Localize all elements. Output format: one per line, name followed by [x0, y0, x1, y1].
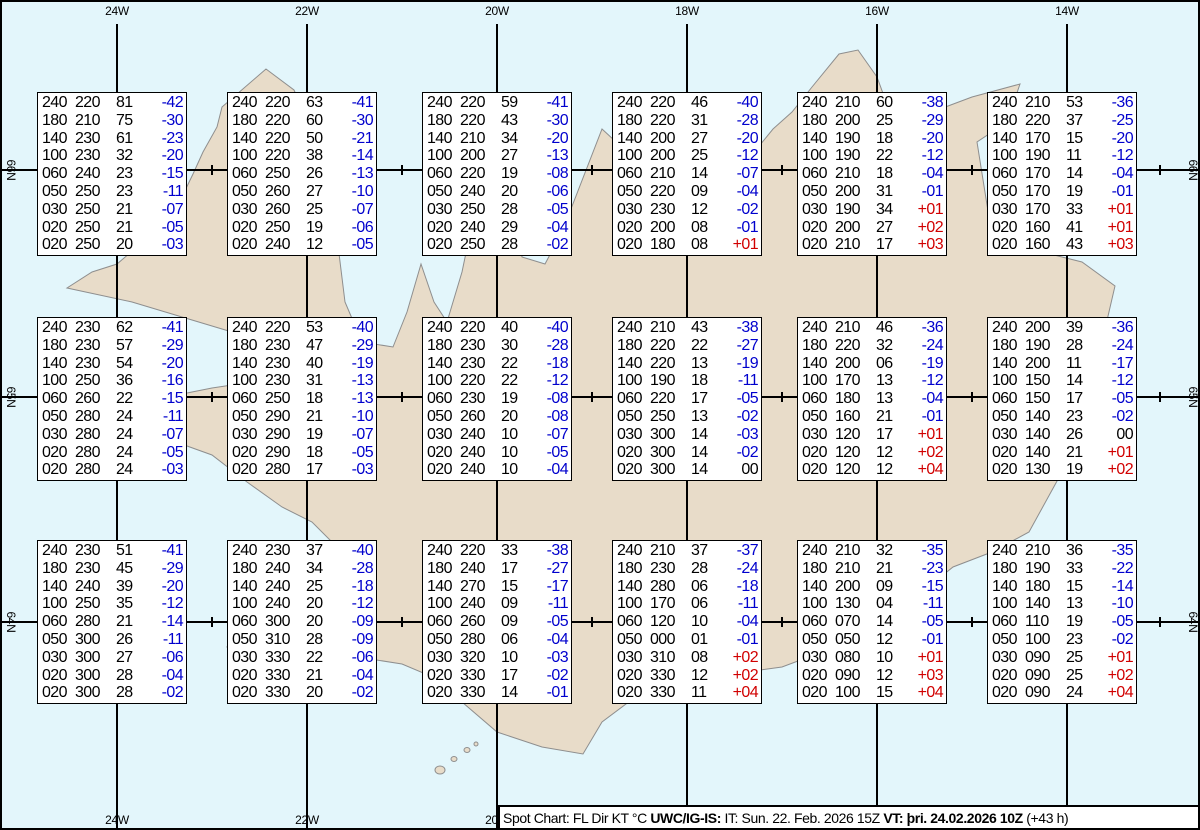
level-row-fl050: 05028006-04	[427, 631, 568, 649]
spot-box-20w-64n: 24022033-3818024017-2714027015-171002400…	[422, 540, 572, 704]
wind-speed-kt: 19	[1066, 461, 1094, 479]
wind-speed-kt: 31	[691, 112, 719, 130]
level-row-fl020: 02024029-04	[427, 219, 568, 237]
level-row-fl020: 02025021-05	[42, 219, 183, 237]
temperature-c: -02	[144, 684, 183, 702]
wind-speed-kt: 39	[1066, 319, 1094, 337]
flight-level: 240	[617, 319, 650, 337]
flight-level: 050	[992, 408, 1025, 426]
wind-speed-kt: 25	[876, 112, 904, 130]
flight-level: 240	[992, 542, 1025, 560]
wind-direction: 000	[650, 631, 691, 649]
flight-level: 020	[427, 461, 460, 479]
wind-direction: 190	[1025, 560, 1066, 578]
flight-level: 030	[617, 426, 650, 444]
wind-direction: 250	[265, 219, 306, 237]
level-row-fl100: 10022038-14	[232, 147, 373, 165]
flight-level: 060	[42, 613, 75, 631]
level-row-fl030: 03017033+01	[992, 201, 1133, 219]
grid-label-bottom-24w: 24W	[105, 813, 129, 827]
temperature-c: -40	[334, 319, 373, 337]
flight-level: 020	[992, 461, 1025, 479]
temperature-c: -09	[334, 631, 373, 649]
wind-direction: 170	[1025, 201, 1066, 219]
wind-speed-kt: 15	[1066, 130, 1094, 148]
temperature-c: -27	[719, 337, 758, 355]
flight-level: 240	[992, 94, 1025, 112]
wind-speed-kt: 14	[691, 461, 719, 479]
wind-speed-kt: 25	[1066, 667, 1094, 685]
wind-direction: 240	[460, 595, 501, 613]
wind-speed-kt: 34	[876, 201, 904, 219]
wind-direction: 280	[460, 631, 501, 649]
temperature-c: -29	[904, 112, 943, 130]
temperature-c: -04	[529, 631, 568, 649]
flight-level: 050	[427, 408, 460, 426]
temperature-c: -10	[334, 183, 373, 201]
wind-speed-kt: 50	[306, 130, 334, 148]
wind-direction: 190	[1025, 147, 1066, 165]
temperature-c: -29	[144, 337, 183, 355]
wind-direction: 190	[1025, 337, 1066, 355]
wind-speed-kt: 12	[876, 667, 904, 685]
wind-speed-kt: 20	[501, 408, 529, 426]
wind-direction: 110	[1025, 613, 1066, 631]
temperature-c: +02	[904, 219, 943, 237]
wind-speed-kt: 34	[306, 560, 334, 578]
wind-speed-kt: 36	[1066, 542, 1094, 560]
flight-level: 100	[42, 147, 75, 165]
wind-direction: 260	[460, 613, 501, 631]
wind-direction: 120	[835, 444, 876, 462]
wind-speed-kt: 14	[691, 426, 719, 444]
wind-speed-kt: 32	[116, 147, 144, 165]
temperature-c: -06	[529, 183, 568, 201]
wind-speed-kt: 22	[116, 390, 144, 408]
wind-direction: 200	[835, 219, 876, 237]
level-row-fl060: 06007014-05	[802, 613, 943, 631]
temperature-c: -01	[529, 684, 568, 702]
level-row-fl140: 14024039-20	[42, 578, 183, 596]
wind-direction: 220	[265, 94, 306, 112]
wind-speed-kt: 33	[1066, 201, 1094, 219]
temperature-c: -04	[529, 461, 568, 479]
flight-level: 140	[42, 130, 75, 148]
wind-direction: 190	[835, 130, 876, 148]
flight-level: 020	[427, 684, 460, 702]
wind-direction: 330	[650, 684, 691, 702]
flight-level: 030	[42, 201, 75, 219]
wind-speed-kt: 25	[691, 147, 719, 165]
wind-speed-kt: 12	[691, 201, 719, 219]
flight-level: 020	[617, 219, 650, 237]
flight-level: 060	[802, 390, 835, 408]
temperature-c: -15	[144, 390, 183, 408]
flight-level: 060	[802, 165, 835, 183]
wind-direction: 220	[1025, 112, 1066, 130]
wind-direction: 210	[650, 319, 691, 337]
flight-level: 030	[617, 649, 650, 667]
wind-speed-kt: 21	[306, 667, 334, 685]
wind-speed-kt: 21	[116, 613, 144, 631]
temperature-c: -41	[334, 94, 373, 112]
level-row-fl020: 02009024+04	[992, 684, 1133, 702]
level-row-fl240: 24023062-41	[42, 319, 183, 337]
wind-direction: 120	[650, 613, 691, 631]
wind-speed-kt: 13	[691, 408, 719, 426]
wind-speed-kt: 40	[501, 319, 529, 337]
flight-level: 060	[617, 613, 650, 631]
wind-speed-kt: 22	[691, 337, 719, 355]
temperature-c: -03	[719, 426, 758, 444]
wind-speed-kt: 39	[116, 578, 144, 596]
temperature-c: -05	[1094, 390, 1133, 408]
flight-level: 140	[42, 355, 75, 373]
wind-speed-kt: 17	[306, 461, 334, 479]
level-row-fl180: 18023030-28	[427, 337, 568, 355]
temperature-c: -23	[144, 130, 183, 148]
flight-level: 020	[232, 684, 265, 702]
wind-speed-kt: 23	[116, 183, 144, 201]
level-row-fl140: 14020027-20	[617, 130, 758, 148]
temperature-c: -05	[529, 201, 568, 219]
level-row-fl050: 05016021-01	[802, 408, 943, 426]
wind-speed-kt: 22	[501, 372, 529, 390]
level-row-fl180: 18022060-30	[232, 112, 373, 130]
level-row-fl020: 02024012-05	[232, 236, 373, 254]
wind-speed-kt: 26	[306, 165, 334, 183]
temperature-c: -04	[719, 183, 758, 201]
level-row-fl180: 18019033-22	[992, 560, 1133, 578]
flight-level: 020	[42, 219, 75, 237]
flight-level: 020	[42, 236, 75, 254]
wind-direction: 220	[650, 183, 691, 201]
temperature-c: -23	[904, 560, 943, 578]
wind-direction: 230	[75, 560, 116, 578]
wind-direction: 250	[75, 372, 116, 390]
temperature-c: -04	[904, 390, 943, 408]
grid-label-top-20w: 20W	[485, 4, 509, 18]
wind-direction: 240	[265, 560, 306, 578]
flight-level: 240	[427, 319, 460, 337]
level-row-fl020: 02016043+03	[992, 236, 1133, 254]
temperature-c: +04	[1094, 684, 1133, 702]
level-row-fl020: 02024010-05	[427, 444, 568, 462]
grid-label-top-18w: 18W	[675, 4, 699, 18]
wind-speed-kt: 38	[306, 147, 334, 165]
wind-speed-kt: 53	[1066, 94, 1094, 112]
flight-level: 030	[427, 426, 460, 444]
temperature-c: +03	[904, 236, 943, 254]
temperature-c: -12	[719, 147, 758, 165]
level-row-fl060: 06030020-09	[232, 613, 373, 631]
level-row-fl030: 03028024-07	[42, 426, 183, 444]
temperature-c: -06	[144, 649, 183, 667]
flight-level: 050	[42, 631, 75, 649]
temperature-c: -20	[904, 130, 943, 148]
flight-level: 030	[992, 426, 1025, 444]
temperature-c: -19	[719, 355, 758, 373]
temperature-c: -19	[334, 355, 373, 373]
wind-direction: 220	[265, 147, 306, 165]
temperature-c: -24	[1094, 337, 1133, 355]
temperature-c: -12	[334, 595, 373, 613]
level-row-fl240: 24021036-35	[992, 542, 1133, 560]
flight-level: 180	[617, 560, 650, 578]
level-row-fl240: 24022046-40	[617, 94, 758, 112]
temperature-c: -08	[529, 165, 568, 183]
flight-level: 140	[802, 355, 835, 373]
flight-level: 100	[232, 372, 265, 390]
temperature-c: -11	[144, 631, 183, 649]
wind-speed-kt: 28	[116, 684, 144, 702]
flight-level: 100	[42, 595, 75, 613]
flight-level: 140	[427, 130, 460, 148]
temperature-c: -18	[719, 578, 758, 596]
wind-speed-kt: 54	[116, 355, 144, 373]
temperature-c: -27	[529, 560, 568, 578]
flight-level: 180	[42, 337, 75, 355]
flight-level: 060	[992, 165, 1025, 183]
wind-direction: 260	[75, 390, 116, 408]
iceland-landmass	[67, 50, 1115, 774]
wind-direction: 230	[650, 201, 691, 219]
wind-speed-kt: 18	[691, 372, 719, 390]
flight-level: 030	[802, 649, 835, 667]
wind-speed-kt: 26	[116, 631, 144, 649]
level-row-fl100: 10020025-12	[617, 147, 758, 165]
wind-direction: 230	[460, 390, 501, 408]
flight-level: 100	[232, 147, 265, 165]
level-row-fl020: 02009012+03	[802, 667, 943, 685]
level-row-fl240: 24022063-41	[232, 94, 373, 112]
flight-level: 240	[427, 94, 460, 112]
level-row-fl020: 02018008+01	[617, 236, 758, 254]
wind-direction: 240	[75, 578, 116, 596]
wind-speed-kt: 75	[116, 112, 144, 130]
temperature-c: +01	[904, 201, 943, 219]
spot-box-20w-65n: 24022040-4018023030-2814023022-181002202…	[422, 317, 572, 481]
temperature-c: -07	[144, 201, 183, 219]
level-row-fl100: 10025036-16	[42, 372, 183, 390]
flight-level: 240	[42, 542, 75, 560]
wind-speed-kt: 17	[876, 426, 904, 444]
temperature-c: -01	[1094, 183, 1133, 201]
level-row-fl140: 14017015-20	[992, 130, 1133, 148]
wind-speed-kt: 12	[876, 444, 904, 462]
temperature-c: -01	[904, 183, 943, 201]
wind-direction: 190	[835, 147, 876, 165]
temperature-c: -10	[1094, 595, 1133, 613]
wind-direction: 220	[650, 390, 691, 408]
level-row-fl060: 06022019-08	[427, 165, 568, 183]
level-row-fl240: 24021043-38	[617, 319, 758, 337]
level-row-fl180: 18019028-24	[992, 337, 1133, 355]
temperature-c: -13	[334, 372, 373, 390]
temperature-c: -28	[529, 337, 568, 355]
flight-level: 240	[802, 94, 835, 112]
level-row-fl030: 03012017+01	[802, 426, 943, 444]
wind-speed-kt: 15	[876, 684, 904, 702]
wind-speed-kt: 27	[501, 147, 529, 165]
wind-speed-kt: 24	[116, 461, 144, 479]
wind-speed-kt: 37	[306, 542, 334, 560]
wind-speed-kt: 43	[1066, 236, 1094, 254]
wind-direction: 260	[265, 183, 306, 201]
temperature-c: +01	[1094, 649, 1133, 667]
wind-speed-kt: 13	[1066, 595, 1094, 613]
flight-level: 240	[427, 542, 460, 560]
flight-level: 140	[992, 578, 1025, 596]
temperature-c: -20	[529, 130, 568, 148]
flight-level: 180	[992, 337, 1025, 355]
wind-speed-kt: 14	[691, 444, 719, 462]
wind-speed-kt: 11	[1066, 147, 1094, 165]
wind-speed-kt: 06	[876, 355, 904, 373]
temperature-c: -06	[334, 649, 373, 667]
wind-direction: 240	[460, 426, 501, 444]
wind-speed-kt: 17	[1066, 390, 1094, 408]
temperature-c: -12	[1094, 372, 1133, 390]
flight-level: 020	[802, 684, 835, 702]
wind-speed-kt: 33	[1066, 560, 1094, 578]
temperature-c: -09	[334, 613, 373, 631]
wind-speed-kt: 14	[876, 613, 904, 631]
temperature-c: -02	[1094, 408, 1133, 426]
flight-level: 140	[232, 578, 265, 596]
level-row-fl100: 10019022-12	[802, 147, 943, 165]
temperature-c: +04	[904, 461, 943, 479]
flight-level: 140	[802, 578, 835, 596]
level-row-fl020: 02024010-04	[427, 461, 568, 479]
temperature-c: -20	[144, 578, 183, 596]
level-row-fl060: 06024023-15	[42, 165, 183, 183]
level-row-fl140: 14021034-20	[427, 130, 568, 148]
wind-direction: 300	[650, 444, 691, 462]
level-row-fl020: 02020008-01	[617, 219, 758, 237]
temperature-c: -41	[529, 94, 568, 112]
wind-direction: 230	[75, 337, 116, 355]
level-row-fl020: 02033017-02	[427, 667, 568, 685]
level-row-fl180: 18023045-29	[42, 560, 183, 578]
flight-level: 100	[427, 147, 460, 165]
level-row-fl020: 02033020-02	[232, 684, 373, 702]
temperature-c: -13	[334, 390, 373, 408]
flight-level: 060	[427, 613, 460, 631]
wind-direction: 220	[460, 542, 501, 560]
level-row-fl050: 05026020-08	[427, 408, 568, 426]
level-row-fl240: 24020039-36	[992, 319, 1133, 337]
wind-speed-kt: 28	[691, 560, 719, 578]
wind-direction: 140	[1025, 444, 1066, 462]
wind-direction: 250	[650, 408, 691, 426]
level-row-fl100: 10014013-10	[992, 595, 1133, 613]
spot-box-14w-66n: 24021053-3618022037-2514017015-201001901…	[987, 92, 1137, 256]
temperature-c: -11	[904, 595, 943, 613]
flight-level: 100	[232, 595, 265, 613]
level-row-fl050: 05017019-01	[992, 183, 1133, 201]
flight-level: 030	[232, 426, 265, 444]
flight-level: 180	[427, 112, 460, 130]
flight-level: 060	[42, 390, 75, 408]
wind-speed-kt: 26	[1066, 426, 1094, 444]
flight-level: 240	[617, 94, 650, 112]
flight-level: 240	[617, 542, 650, 560]
wind-direction: 330	[265, 684, 306, 702]
flight-level: 030	[232, 201, 265, 219]
level-row-fl020: 02016041+01	[992, 219, 1133, 237]
temperature-c: -41	[144, 542, 183, 560]
flight-level: 020	[427, 236, 460, 254]
level-row-fl180: 18023028-24	[617, 560, 758, 578]
level-row-fl140: 14023022-18	[427, 355, 568, 373]
level-row-fl020: 02020027+02	[802, 219, 943, 237]
temperature-c: -15	[904, 578, 943, 596]
level-row-fl050: 05025013-02	[617, 408, 758, 426]
level-row-fl140: 14020009-15	[802, 578, 943, 596]
temperature-c: -20	[719, 130, 758, 148]
flight-level: 180	[802, 560, 835, 578]
flight-level: 180	[992, 560, 1025, 578]
wind-direction: 200	[835, 112, 876, 130]
wind-speed-kt: 51	[116, 542, 144, 560]
flight-level: 050	[992, 631, 1025, 649]
wind-direction: 240	[265, 578, 306, 596]
level-row-fl100: 10017006-11	[617, 595, 758, 613]
wind-direction: 220	[265, 319, 306, 337]
wind-direction: 250	[75, 595, 116, 613]
wind-direction: 130	[1025, 461, 1066, 479]
flight-level: 030	[42, 649, 75, 667]
wind-speed-kt: 01	[691, 631, 719, 649]
level-row-fl180: 18022043-30	[427, 112, 568, 130]
wind-speed-kt: 28	[1066, 337, 1094, 355]
flight-level: 100	[617, 147, 650, 165]
wind-direction: 150	[1025, 372, 1066, 390]
wind-direction: 090	[835, 667, 876, 685]
wind-speed-kt: 40	[306, 355, 334, 373]
temperature-c: -22	[1094, 560, 1133, 578]
wind-direction: 240	[460, 560, 501, 578]
wind-direction: 240	[460, 183, 501, 201]
flight-level: 060	[802, 613, 835, 631]
wind-speed-kt: 14	[691, 165, 719, 183]
wind-direction: 220	[460, 319, 501, 337]
wind-speed-kt: 23	[1066, 408, 1094, 426]
temperature-c: -20	[1094, 130, 1133, 148]
flight-level: 100	[42, 372, 75, 390]
level-row-fl060: 06021018-04	[802, 165, 943, 183]
flight-level: 180	[232, 337, 265, 355]
temperature-c: -06	[334, 219, 373, 237]
wind-direction: 190	[650, 372, 691, 390]
grid-label-left-64n: 64N	[4, 611, 18, 632]
grid-label-right-66n: 66N	[1186, 159, 1200, 180]
wind-direction: 280	[75, 461, 116, 479]
wind-speed-kt: 27	[306, 183, 334, 201]
wind-speed-kt: 19	[501, 165, 529, 183]
temperature-c: -38	[719, 319, 758, 337]
temperature-c: -13	[334, 165, 373, 183]
wind-speed-kt: 81	[116, 94, 144, 112]
temperature-c: -01	[719, 631, 758, 649]
wind-speed-kt: 19	[501, 390, 529, 408]
temperature-c: -05	[334, 236, 373, 254]
spot-box-22w-66n: 24022063-4118022060-3014022050-211002203…	[227, 92, 377, 256]
wind-direction: 230	[265, 355, 306, 373]
flight-level: 180	[802, 112, 835, 130]
wind-speed-kt: 21	[876, 560, 904, 578]
